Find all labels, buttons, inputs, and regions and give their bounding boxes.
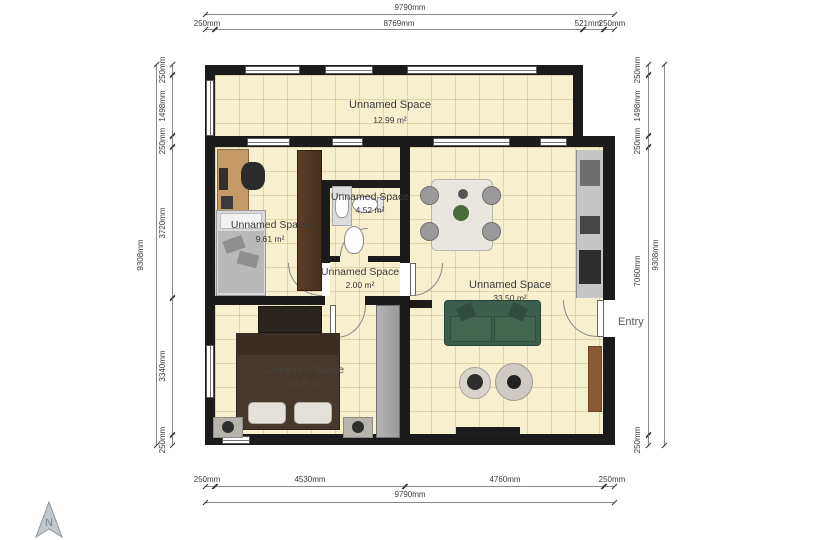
wall-bottom (205, 434, 615, 445)
north-letter: N (45, 517, 53, 529)
dim-top-line3 (604, 29, 615, 30)
window-balcony-left (206, 80, 214, 136)
window-balcony-1 (245, 66, 300, 74)
bed-pillow-1 (248, 402, 286, 424)
north-arrow-icon: N (28, 500, 70, 540)
dim-right-line1 (648, 75, 649, 136)
bedroom-dresser[interactable] (258, 306, 322, 333)
hall-cabinet[interactable] (588, 346, 602, 412)
dim-bottom-seg1: 4530mm (280, 475, 340, 485)
desk-storage[interactable] (221, 196, 233, 209)
door-entry-leaf[interactable] (597, 300, 604, 337)
room-label-office: Unnamed Space (210, 219, 330, 232)
dim-bottom-seg2: 4760mm (475, 475, 535, 485)
dim-top-line2 (583, 29, 604, 30)
room-label-balcony: Unnamed Space (320, 99, 460, 112)
dining-chair-2[interactable] (420, 222, 439, 241)
kitchen-appliance (580, 216, 600, 234)
wall-right (603, 136, 615, 445)
kitchen-stove (579, 250, 601, 284)
dim-left-line1 (172, 75, 173, 136)
lamp-left (222, 421, 234, 433)
window-bedroom-left (206, 345, 214, 398)
wall-balcony-right (573, 65, 583, 147)
wall-bathroom-bottom-b (368, 256, 400, 262)
round-table-center (507, 375, 521, 389)
room-label-hall: Unnamed Space (310, 266, 410, 279)
dim-bottom-total: 9790mm (370, 490, 450, 500)
dim-right-total: 9308mm (651, 230, 661, 280)
entry-label: Entry (618, 316, 644, 328)
room-area-balcony: 12.99 m² (320, 115, 460, 126)
dim-right-seg4: 250mm (633, 415, 643, 465)
bed-fold (236, 333, 340, 355)
dim-top-seg3: 250mm (590, 19, 634, 29)
dim-top-total: 9790mm (370, 3, 450, 13)
dim-left-seg2: 250mm (158, 116, 168, 166)
dim-left-seg4: 3340mm (158, 341, 168, 391)
dim-left-seg5: 250mm (158, 415, 168, 465)
kitchen-sink (580, 160, 600, 186)
desk-chair[interactable] (241, 162, 265, 190)
dining-chair-3[interactable] (482, 186, 501, 205)
dim-right-seg3: 7060mm (633, 246, 643, 296)
dim-bottom-seg3: 250mm (590, 475, 634, 485)
room-label-bathroom: Unnamed Space (310, 191, 430, 204)
dim-bottom-line2 (405, 486, 604, 487)
dim-right-line3 (648, 147, 649, 435)
room-area-bathroom: 4.52 m² (330, 205, 410, 216)
dim-bottom-total-line (205, 502, 615, 503)
lamp-right (352, 421, 364, 433)
room-label-bedroom: Unnamed Space (245, 364, 365, 377)
door-entry-gap (603, 300, 615, 337)
dining-chair-4[interactable] (482, 222, 501, 241)
dim-bottom-line1 (215, 486, 405, 487)
dim-left-line4 (172, 298, 173, 435)
dim-left-line3 (172, 147, 173, 298)
sofa-cushion-2 (494, 316, 536, 342)
room-area-bedroom: 14.85 m² (255, 378, 355, 389)
dim-left-total: 9308mm (136, 230, 146, 280)
wall-office-bedroom-b (365, 296, 410, 305)
room-area-living: 33.50 m² (465, 293, 555, 304)
wall-left (205, 136, 215, 445)
wall-bathroom-bottom-a (330, 256, 340, 262)
window-divider-3 (433, 138, 510, 146)
room-label-living: Unnamed Space (455, 279, 565, 292)
window-divider-1 (247, 138, 290, 146)
tv-console[interactable] (456, 427, 520, 436)
dim-left-line5 (172, 435, 173, 445)
bed-pillow-2 (294, 402, 332, 424)
wall-stub-living (410, 300, 432, 308)
dim-left-seg3: 3720mm (158, 198, 168, 248)
window-divider-2 (332, 138, 363, 146)
table-bowl (458, 189, 468, 199)
window-divider-4 (540, 138, 567, 146)
room-area-hall: 2.00 m² (320, 280, 400, 291)
dim-bottom-line3 (604, 486, 615, 487)
bedroom-cabinet[interactable] (376, 305, 400, 438)
bidet[interactable] (344, 226, 364, 254)
dim-right-line4 (648, 435, 649, 445)
wall-office-bedroom-a (215, 296, 325, 305)
window-balcony-2 (325, 66, 373, 74)
sofa-cushion-1 (450, 316, 492, 342)
dim-right-total-line (664, 65, 665, 445)
dim-left-total-line (156, 65, 157, 445)
dim-right-seg2: 250mm (633, 116, 643, 166)
room-area-office: 9.61 m² (210, 234, 330, 245)
dim-top-total-line (205, 14, 615, 15)
dim-top-line1 (215, 29, 583, 30)
window-balcony-3 (407, 66, 537, 74)
floorplan-canvas: Unnamed Space 12.99 m² Unnamed Space 9.6… (0, 0, 818, 540)
table-plant (453, 205, 469, 221)
floor-plant (467, 374, 483, 390)
dim-top-seg1: 8769mm (369, 19, 429, 29)
monitor[interactable] (219, 168, 228, 190)
